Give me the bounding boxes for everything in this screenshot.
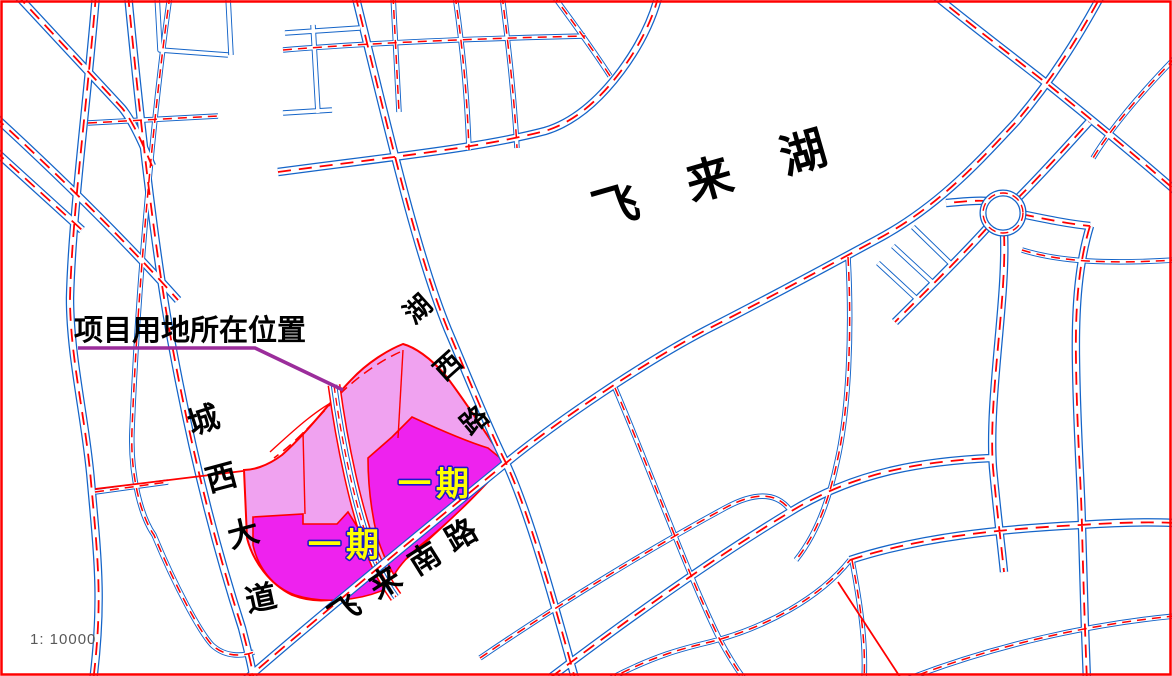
callout-leader-line [78,348,343,390]
phase1-label-west: 一期 [308,527,384,564]
road-char: 道 [242,578,280,619]
callout-text: 项目用地所在位置 [74,313,306,347]
phase1-label-east: 一期 [398,466,474,503]
lake-label: 飞 来 湖 [587,117,852,238]
callout: 项目用地所在位置 [74,313,343,390]
lake-label-group: 飞 来 湖 [587,117,852,238]
site-location-map: 飞 来 湖 项目用地所在位置 湖 西 路 城 西 大 道 飞 来 南 路 一期 … [0,0,1172,676]
map-canvas: 飞 来 湖 项目用地所在位置 湖 西 路 城 西 大 道 飞 来 南 路 一期 … [0,0,1172,676]
scale-label: 1: 10000 [30,631,96,648]
roundabout [983,193,1023,233]
